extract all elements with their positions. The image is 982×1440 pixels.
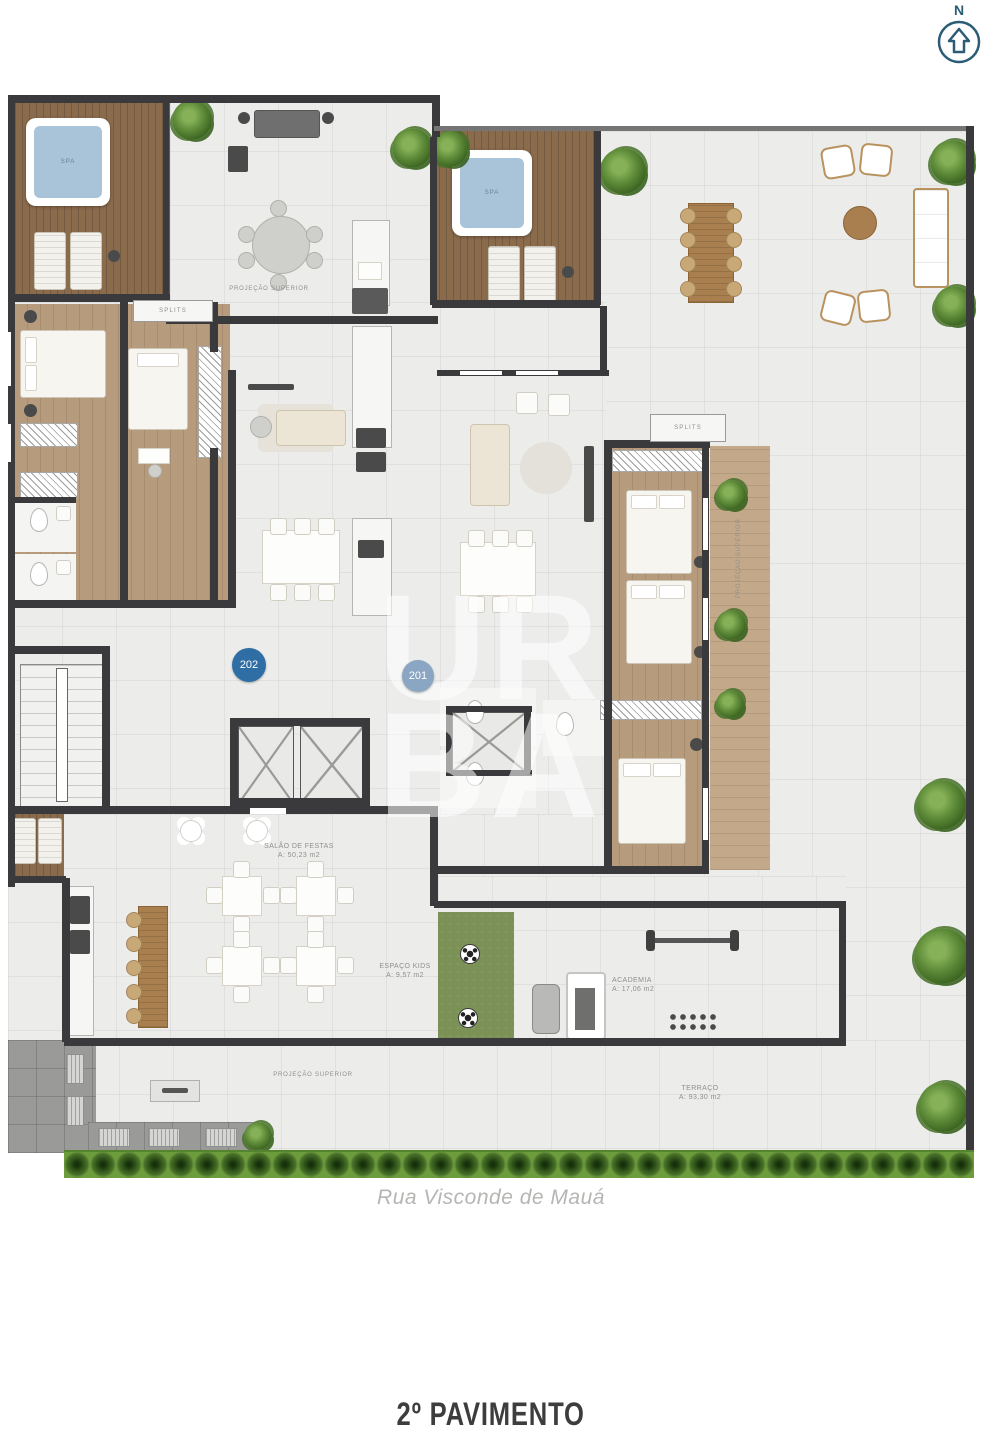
- wall-segment: [120, 302, 128, 602]
- wall-segment: [437, 866, 709, 874]
- treadmill-belt: [575, 988, 595, 1030]
- wall-segment: [446, 770, 532, 776]
- wall-segment: [594, 131, 601, 305]
- wall-segment: [434, 901, 846, 908]
- chair: [468, 596, 485, 613]
- sun-lounger: [524, 246, 556, 302]
- wall-segment: [604, 440, 612, 870]
- sun-lounger: [38, 818, 62, 864]
- wall-segment: [102, 646, 110, 812]
- sink: [56, 560, 71, 575]
- bed: [128, 348, 188, 430]
- hedge-row: [64, 1150, 974, 1178]
- wall-segment: [230, 718, 370, 726]
- armchair: [250, 416, 272, 438]
- wall-segment: [839, 901, 846, 1041]
- chair: [294, 518, 311, 535]
- chair: [294, 584, 311, 601]
- wall-segment: [8, 95, 15, 887]
- pillow: [631, 495, 657, 509]
- unit-badge-202: 202: [232, 648, 266, 682]
- chair: [726, 256, 742, 272]
- wall-segment: [446, 706, 532, 712]
- nightstand: [24, 310, 37, 323]
- sun-lounger: [70, 232, 102, 290]
- compass-arrow-icon: [936, 19, 982, 65]
- bed: [626, 580, 692, 664]
- stove: [358, 540, 384, 558]
- chair: [263, 957, 280, 974]
- chair: [306, 226, 323, 243]
- wall-segment: [524, 706, 531, 776]
- unit-badge-201: 201: [402, 660, 434, 692]
- ceiling-light: [180, 820, 202, 842]
- wall-segment: [8, 876, 66, 883]
- pillow: [623, 763, 651, 777]
- pillow: [137, 353, 179, 367]
- chair: [680, 208, 696, 224]
- wall-segment: [8, 600, 232, 608]
- chair: [492, 530, 509, 547]
- chair: [680, 281, 696, 297]
- wall-segment: [600, 306, 607, 374]
- toilet: [30, 562, 48, 586]
- plant: [600, 148, 646, 194]
- wall-segment: [8, 646, 108, 654]
- side-table: [108, 250, 120, 262]
- sink: [358, 262, 382, 280]
- round-table: [252, 216, 310, 274]
- splits-box: SPLITS: [650, 414, 726, 442]
- sun-lounger: [488, 246, 520, 302]
- gym-name: ACADEMIA: [612, 976, 688, 985]
- armchair: [819, 143, 856, 180]
- wall-segment: [62, 878, 70, 1042]
- exercise-bike: [532, 984, 560, 1034]
- soccer-ball: [460, 944, 480, 964]
- elevator-x-icon: [301, 727, 363, 803]
- nightstand: [24, 404, 37, 417]
- toilet: [30, 508, 48, 532]
- sofa: [913, 188, 949, 288]
- projecao-superior-label: PROJEÇÃO SUPERIOR: [254, 1072, 372, 1080]
- bar-stool: [126, 912, 142, 928]
- chair: [233, 931, 250, 948]
- chair: [307, 931, 324, 948]
- kids-name: ESPAÇO KIDS: [374, 962, 436, 971]
- party-table: [222, 946, 262, 986]
- toilet: [466, 700, 484, 724]
- appliance: [70, 896, 90, 924]
- stair-rail: [56, 668, 68, 802]
- projecao-superior-label: PROJEÇÃO SUPERIOR: [736, 498, 750, 618]
- party-room-area: A: 50,23 m2: [240, 851, 358, 860]
- chair: [270, 200, 287, 217]
- wall-segment: [228, 370, 236, 608]
- chair: [516, 530, 533, 547]
- chair: [233, 986, 250, 1003]
- party-table: [222, 876, 262, 916]
- pillow: [25, 365, 37, 391]
- plant: [914, 928, 970, 984]
- wardrobe: [20, 472, 78, 498]
- pillow: [631, 585, 657, 599]
- wall-segment: [210, 448, 218, 606]
- window: [6, 424, 11, 462]
- dumbbell-rack: [668, 1012, 720, 1032]
- appliance: [356, 428, 386, 448]
- party-table: [296, 946, 336, 986]
- side-table: [322, 112, 334, 124]
- splits-box: SPLITS: [133, 300, 213, 322]
- splits-label: SPLITS: [159, 308, 187, 314]
- wall-segment: [230, 718, 238, 806]
- chair: [206, 887, 223, 904]
- bar-stool: [126, 960, 142, 976]
- window: [703, 788, 708, 840]
- wardrobe: [600, 700, 702, 720]
- sofa: [276, 410, 346, 446]
- bed: [20, 330, 106, 398]
- drain-grate: [66, 1054, 84, 1084]
- chair: [280, 887, 297, 904]
- terrace-area: A: 93,30 m2: [652, 1093, 748, 1102]
- wall-segment: [430, 137, 437, 305]
- pillow: [25, 337, 37, 363]
- chair: [318, 518, 335, 535]
- sink: [56, 506, 71, 521]
- barbell-plate: [730, 930, 739, 951]
- dining-table: [460, 542, 536, 596]
- plant: [716, 690, 744, 718]
- tv-panel: [248, 384, 294, 390]
- chair: [337, 957, 354, 974]
- wall-segment: [230, 798, 370, 806]
- window: [516, 371, 558, 375]
- chair: [307, 861, 324, 878]
- elevator-shaft: [300, 726, 364, 804]
- armchair: [858, 142, 893, 177]
- wall-segment: [362, 718, 370, 806]
- bed: [626, 490, 692, 574]
- rug: [520, 442, 572, 494]
- chair: [270, 584, 287, 601]
- coffee-table: [843, 206, 877, 240]
- plant: [916, 780, 966, 830]
- kids-area: A: 9,57 m2: [374, 971, 436, 980]
- wall-segment: [14, 497, 76, 503]
- terrace-label: TERRAÇO A: 93,30 m2: [652, 1084, 748, 1102]
- spa-pool: SPA: [26, 118, 110, 206]
- window: [703, 498, 708, 550]
- north-compass: N: [933, 2, 982, 70]
- toilet: [556, 712, 574, 736]
- bed: [618, 758, 686, 844]
- fire-pit-slot: [162, 1088, 188, 1093]
- floor-title-text: 2º PAVIMENTO: [397, 1396, 585, 1433]
- bathroom-floor: [543, 700, 605, 756]
- window: [703, 598, 708, 640]
- wardrobe: [20, 423, 78, 447]
- wall-segment: [430, 806, 438, 906]
- chair: [270, 518, 287, 535]
- kitchen-counter: [352, 518, 392, 616]
- chair: [206, 957, 223, 974]
- wall-segment: [966, 126, 974, 1153]
- chair: [337, 887, 354, 904]
- chair: [306, 252, 323, 269]
- chair: [233, 861, 250, 878]
- plant: [244, 1122, 272, 1150]
- chair: [468, 530, 485, 547]
- appliance: [70, 930, 90, 954]
- armchair: [856, 288, 891, 323]
- party-room-label: SALÃO DE FESTAS A: 50,23 m2: [240, 842, 358, 860]
- wall-segment: [163, 99, 169, 296]
- bar-stool: [126, 936, 142, 952]
- ceiling-light: [246, 820, 268, 842]
- wall-segment: [8, 95, 440, 103]
- treadmill: [566, 972, 606, 1040]
- grill: [228, 146, 248, 172]
- plant: [172, 100, 212, 140]
- pillow: [659, 585, 685, 599]
- elevator-shaft: [238, 726, 294, 804]
- soccer-ball: [458, 1008, 478, 1028]
- chair: [238, 226, 255, 243]
- armchair: [548, 394, 570, 416]
- street-name-label: Rua Visconde de Mauá: [0, 1186, 982, 1210]
- wardrobe: [612, 450, 704, 472]
- elevator-shaft: [452, 712, 526, 772]
- elevator-x-icon: [453, 713, 525, 771]
- wardrobe: [198, 346, 222, 458]
- window: [460, 371, 502, 375]
- drain-grate: [66, 1096, 84, 1126]
- bar-counter: [138, 906, 168, 1028]
- chair: [726, 208, 742, 224]
- chair: [307, 986, 324, 1003]
- chair: [263, 887, 280, 904]
- wall-segment: [64, 1038, 846, 1046]
- appliance: [352, 288, 388, 314]
- bar-stool: [126, 984, 142, 1000]
- spa-label: SPA: [34, 126, 102, 198]
- drain-grate: [148, 1128, 180, 1147]
- sofa: [470, 424, 510, 506]
- chair: [318, 584, 335, 601]
- plant: [918, 1082, 968, 1132]
- party-room-name: SALÃO DE FESTAS: [240, 842, 358, 851]
- sun-lounger: [34, 232, 66, 290]
- north-label: N: [933, 2, 982, 18]
- chair: [726, 232, 742, 248]
- chair: [680, 256, 696, 272]
- sofa: [254, 110, 320, 138]
- drain-grate: [98, 1128, 130, 1147]
- floor-plan-sheet: SPA SPA: [0, 0, 982, 1440]
- chair: [492, 596, 509, 613]
- desk: [138, 448, 170, 464]
- plant: [392, 128, 432, 168]
- floor-title: 2º PAVIMENTO: [0, 1396, 982, 1433]
- gym-area: A: 17,06 m2: [612, 985, 688, 994]
- projecao-superior-label: PROJEÇÃO SUPERIOR: [210, 286, 328, 294]
- terrace-name: TERRAÇO: [652, 1084, 748, 1093]
- chair: [680, 232, 696, 248]
- bar-stool: [126, 1008, 142, 1024]
- elevator-x-icon: [239, 727, 293, 803]
- gym-label: ACADEMIA A: 17,06 m2: [612, 976, 688, 994]
- barbell: [650, 938, 734, 943]
- party-table: [296, 876, 336, 916]
- chair: [238, 252, 255, 269]
- drain-grate: [205, 1128, 237, 1147]
- kids-label: ESPAÇO KIDS A: 9,57 m2: [374, 962, 436, 980]
- wall-segment: [446, 706, 452, 776]
- chair: [280, 957, 297, 974]
- chair: [148, 464, 162, 478]
- wall-segment: [432, 300, 600, 308]
- sun-lounger: [12, 818, 36, 864]
- tv-panel: [584, 446, 594, 522]
- barbell-plate: [646, 930, 655, 951]
- chair: [726, 281, 742, 297]
- spa-label: SPA: [460, 158, 524, 228]
- side-table: [238, 112, 250, 124]
- armchair: [516, 392, 538, 414]
- splits-label: SPLITS: [674, 425, 702, 431]
- spa-pool: SPA: [452, 150, 532, 236]
- wall-segment: [434, 126, 974, 131]
- dining-table: [262, 530, 340, 584]
- door-opening: [250, 808, 286, 814]
- pillow: [659, 495, 685, 509]
- appliance: [356, 452, 386, 472]
- chair: [516, 596, 533, 613]
- pillow: [653, 763, 681, 777]
- side-table: [562, 266, 574, 278]
- window: [6, 332, 11, 386]
- wall-segment: [8, 806, 438, 814]
